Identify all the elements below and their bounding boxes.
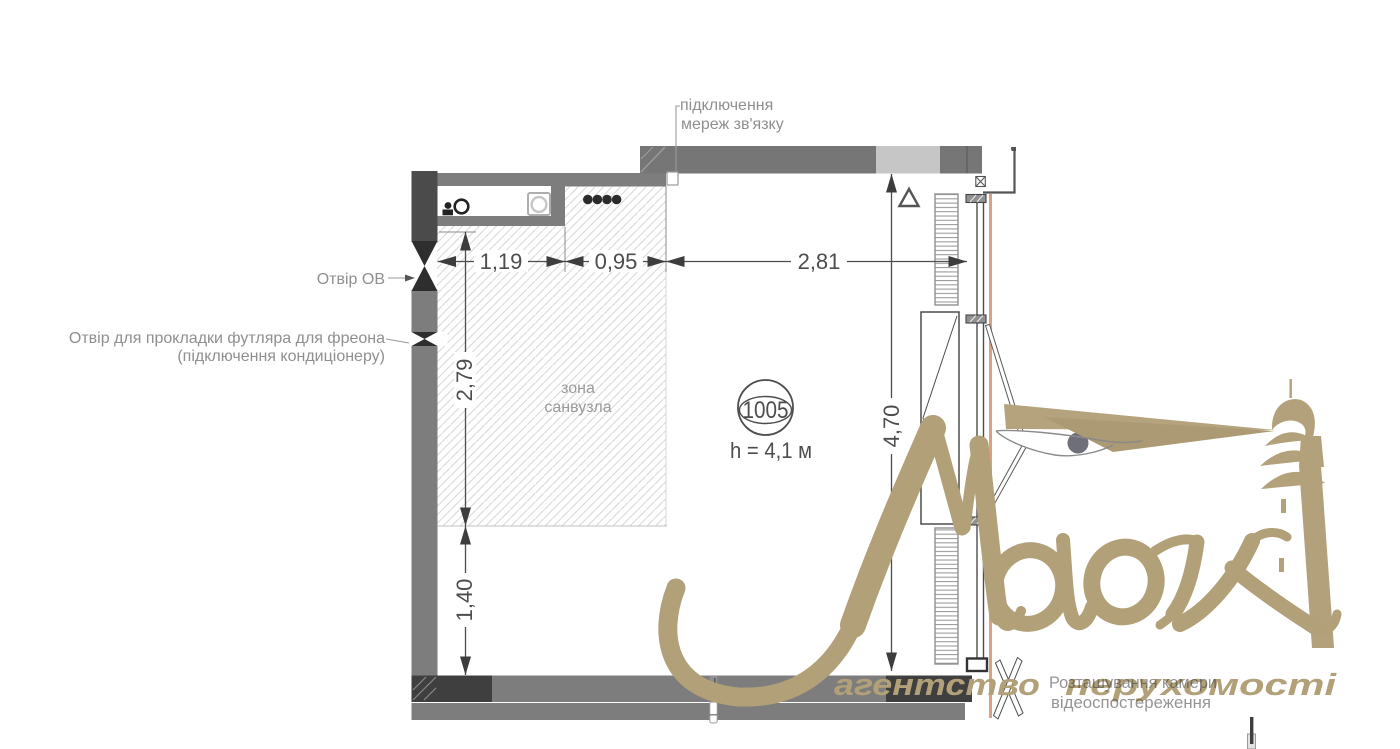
svg-text:2,79: 2,79 (452, 359, 477, 402)
svg-text:підключення: підключення (680, 97, 773, 114)
svg-text:1005: 1005 (743, 397, 789, 424)
svg-text:(підключення кондиціонеру): (підключення кондиціонеру) (177, 348, 385, 365)
svg-text:h = 4,1 м: h = 4,1 м (730, 438, 812, 463)
svg-text:Отвір ОВ: Отвір ОВ (317, 271, 385, 288)
svg-text:1,19: 1,19 (480, 249, 523, 274)
svg-text:мереж зв'язку: мереж зв'язку (681, 116, 784, 133)
svg-text:санвузла: санвузла (544, 399, 611, 416)
svg-text:0,95: 0,95 (595, 249, 638, 274)
svg-text:зона: зона (561, 380, 595, 397)
svg-text:відеоспостереження: відеоспостереження (1051, 693, 1211, 712)
svg-text:Отвір для прокладки футляра дл: Отвір для прокладки футляра для фреона (69, 330, 385, 347)
svg-text:2,81: 2,81 (798, 249, 841, 274)
svg-text:4,70: 4,70 (879, 405, 904, 448)
svg-text:Розташування камери: Розташування камери (1049, 673, 1217, 692)
svg-text:агентство: агентство (834, 667, 1040, 702)
svg-text:1,40: 1,40 (452, 579, 477, 622)
